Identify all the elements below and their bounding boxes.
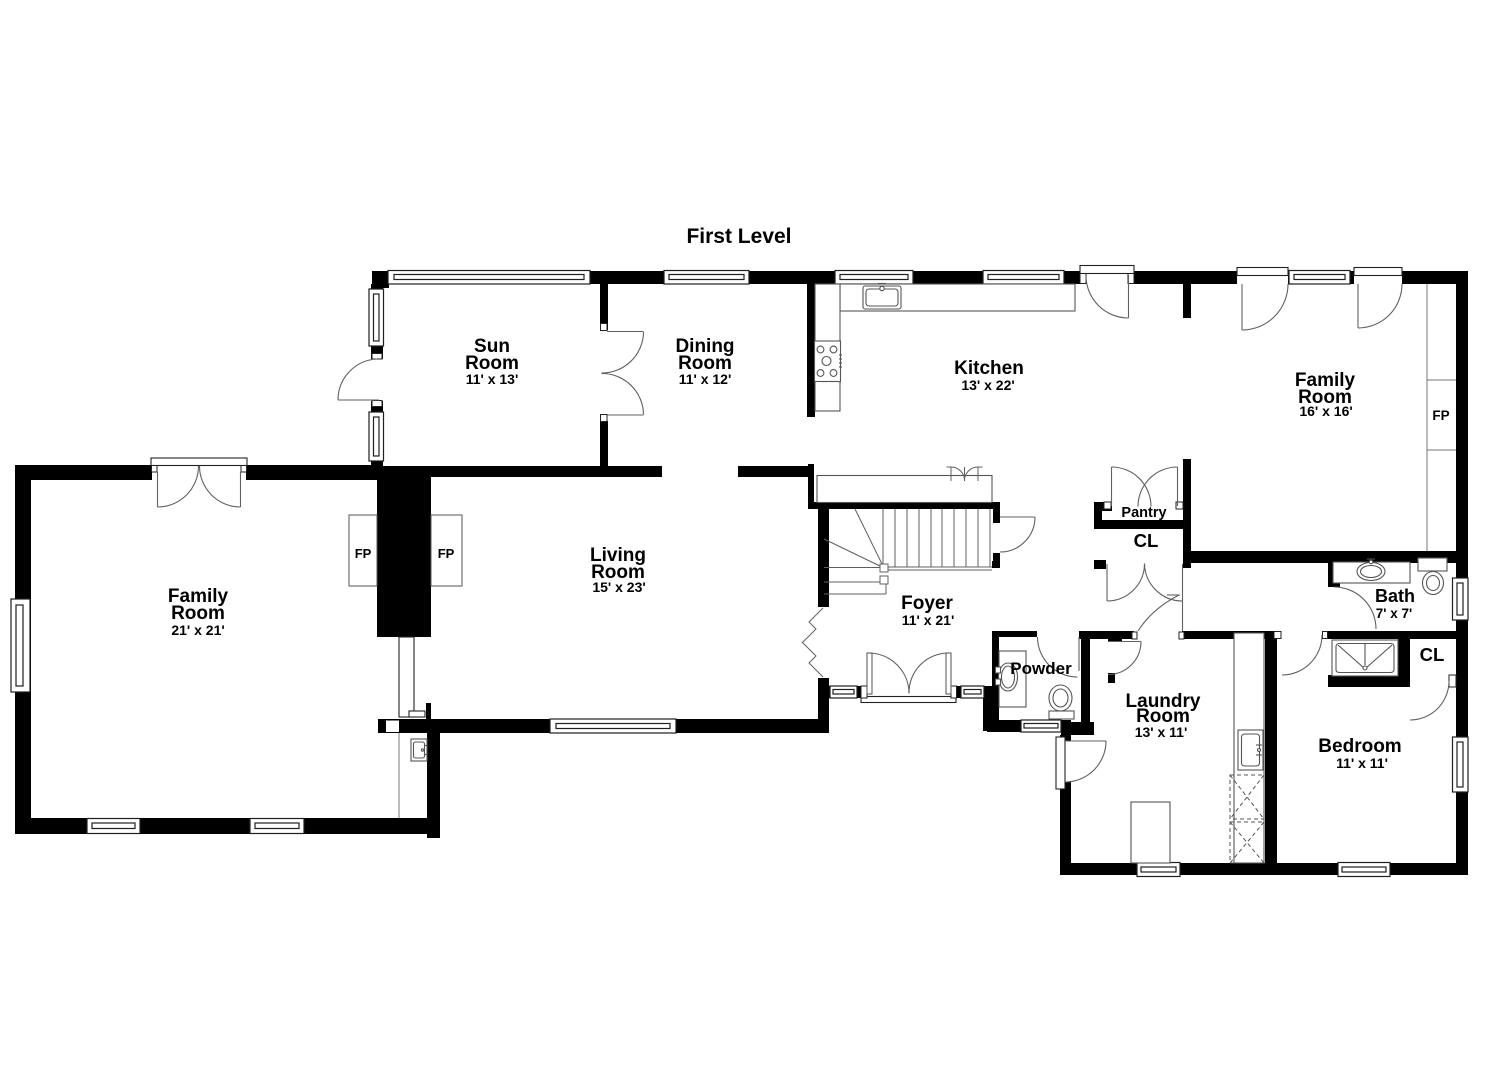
svg-text:FP: FP [355, 546, 372, 561]
svg-text:CL: CL [1134, 530, 1159, 551]
svg-text:11' x 11': 11' x 11' [1336, 755, 1388, 771]
svg-text:15' x 23': 15' x 23' [592, 579, 645, 595]
svg-text:11' x 12': 11' x 12' [679, 371, 732, 387]
svg-text:13' x 22': 13' x 22' [961, 377, 1014, 393]
svg-text:7' x 7': 7' x 7' [1376, 606, 1412, 621]
svg-text:First Level: First Level [686, 225, 791, 248]
svg-text:11' x 13': 11' x 13' [466, 371, 519, 387]
svg-text:21' x 21': 21' x 21' [171, 622, 224, 638]
svg-text:13' x 11': 13' x 11' [1135, 724, 1188, 740]
svg-text:FP: FP [438, 546, 455, 561]
svg-text:Room: Room [171, 603, 225, 624]
svg-text:Bath: Bath [1375, 586, 1415, 606]
svg-text:Foyer: Foyer [901, 593, 953, 614]
svg-text:CL: CL [1420, 644, 1445, 665]
svg-text:Kitchen: Kitchen [954, 358, 1024, 379]
svg-text:Powder: Powder [1010, 659, 1072, 678]
svg-text:Pantry: Pantry [1121, 505, 1166, 521]
svg-text:16' x 16': 16' x 16' [1299, 403, 1352, 419]
svg-text:11' x 21': 11' x 21' [902, 612, 955, 628]
svg-text:Bedroom: Bedroom [1318, 736, 1401, 757]
svg-text:FP: FP [1432, 408, 1449, 423]
